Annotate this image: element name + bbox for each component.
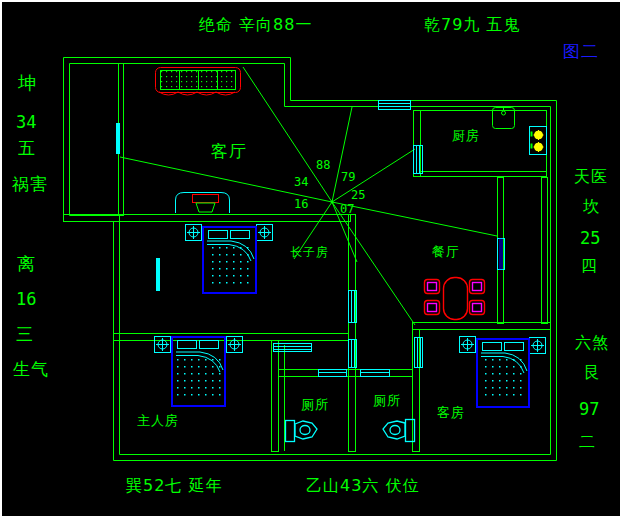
pillow bbox=[200, 341, 219, 349]
ray-down-right bbox=[332, 202, 415, 325]
tv-cabinet bbox=[176, 193, 230, 214]
room-label-eldest-son: 长子房 bbox=[290, 246, 329, 259]
pillow bbox=[178, 341, 197, 349]
pillow bbox=[505, 343, 524, 351]
burner bbox=[534, 130, 544, 140]
annotation-left-li: 离 bbox=[17, 255, 36, 274]
annotation-top-right: 乾79九 五鬼 bbox=[424, 17, 520, 34]
window-guest-hall bbox=[415, 338, 423, 368]
annotation-left-kun: 坤 bbox=[18, 74, 37, 93]
door-balcony bbox=[116, 123, 120, 154]
bed-master bbox=[155, 337, 243, 407]
annotation-top-left: 绝命 辛向88一 bbox=[199, 17, 312, 34]
annotation-left-huohai: 祸害 bbox=[12, 176, 48, 194]
door-closet bbox=[156, 258, 160, 291]
dining-chair bbox=[470, 301, 485, 315]
room-label-guest: 客房 bbox=[437, 406, 465, 420]
annotation-left-san: 三 bbox=[16, 326, 34, 344]
ray-up bbox=[332, 107, 352, 202]
room-label-toilet-right: 厕所 bbox=[373, 394, 401, 408]
ray-right bbox=[332, 202, 497, 236]
ray-to-sofa bbox=[243, 67, 332, 202]
burner bbox=[534, 142, 544, 152]
room-label-master: 主人房 bbox=[137, 414, 179, 428]
annotation-right-er: 二 bbox=[579, 434, 596, 451]
room-label-living: 客厅 bbox=[211, 143, 247, 161]
pillow bbox=[483, 343, 502, 351]
center-number-88: 88 bbox=[316, 159, 330, 172]
bed-eldest bbox=[186, 225, 273, 294]
window-kitchen bbox=[414, 146, 423, 174]
annotation-right-97: 97 bbox=[579, 401, 599, 419]
window-toilet-right bbox=[361, 370, 390, 377]
annotation-right-si: 四 bbox=[581, 258, 598, 275]
annotation-right-kan: 坎 bbox=[583, 199, 600, 216]
annotation-left-16: 16 bbox=[16, 291, 36, 309]
center-number-16: 16 bbox=[294, 198, 308, 211]
annotation-right-liusha: 六煞 bbox=[575, 335, 609, 352]
nightstand bbox=[186, 225, 202, 241]
annotation-bottom-left: 巽52七 延年 bbox=[126, 478, 222, 495]
windows-doors bbox=[116, 101, 505, 377]
floor-plan-canvas: 绝命 辛向88一 乾79九 五鬼 图二 坤 34 五 祸害 离 16 三 生气 … bbox=[0, 0, 622, 518]
center-number-25: 25 bbox=[351, 189, 365, 202]
center-number-79: 79 bbox=[341, 171, 355, 184]
guest-left-wall bbox=[413, 330, 420, 452]
bed-guest bbox=[460, 337, 546, 408]
dining-chair bbox=[425, 280, 440, 294]
annotation-right-gen: 艮 bbox=[584, 365, 601, 382]
pillow bbox=[231, 231, 250, 239]
room-label-toilet-left: 厕所 bbox=[301, 398, 329, 412]
center-point bbox=[331, 201, 334, 204]
window-toilet-side bbox=[274, 344, 312, 352]
annotation-left-34: 34 bbox=[16, 114, 36, 132]
window-toilet-left bbox=[319, 370, 347, 377]
dining-set bbox=[425, 278, 485, 320]
toilet-fixture-right bbox=[383, 420, 415, 442]
center-number-07: 07 bbox=[340, 203, 354, 216]
tv-screen bbox=[193, 195, 219, 203]
center-number-34: 34 bbox=[294, 176, 308, 189]
kitchen-walls bbox=[421, 111, 547, 177]
annotation-bottom-center: 乙山43六 伏位 bbox=[306, 478, 419, 495]
room-label-dining: 餐厅 bbox=[432, 245, 460, 259]
window-top bbox=[379, 101, 411, 110]
toilet-fixture-left bbox=[286, 421, 318, 442]
figure-label: 图二 bbox=[563, 43, 599, 61]
floor-plan-drawing bbox=[0, 0, 622, 518]
dining-chair bbox=[470, 280, 485, 294]
guest-top-wall bbox=[413, 323, 551, 330]
dining-chair bbox=[425, 301, 440, 315]
nightstand bbox=[227, 337, 243, 353]
annotation-left-wu: 五 bbox=[18, 140, 36, 158]
kitchen-stove bbox=[530, 127, 547, 155]
pillow bbox=[209, 231, 228, 239]
tv-stand bbox=[196, 203, 215, 212]
annotation-left-shengqi: 生气 bbox=[13, 361, 49, 379]
nightstand bbox=[530, 338, 546, 354]
nightstand bbox=[155, 337, 171, 353]
nightstand bbox=[257, 225, 273, 241]
dining-table bbox=[444, 278, 468, 320]
outer-wall-inner-line bbox=[70, 64, 551, 455]
annotation-right-25: 25 bbox=[580, 230, 600, 248]
room-label-kitchen: 厨房 bbox=[452, 129, 480, 143]
nightstand bbox=[460, 337, 476, 353]
annotation-right-tianyi: 天医 bbox=[574, 169, 608, 186]
sofa bbox=[156, 68, 241, 96]
master-right-wall bbox=[272, 341, 279, 452]
corridor-right-wall bbox=[542, 178, 548, 324]
